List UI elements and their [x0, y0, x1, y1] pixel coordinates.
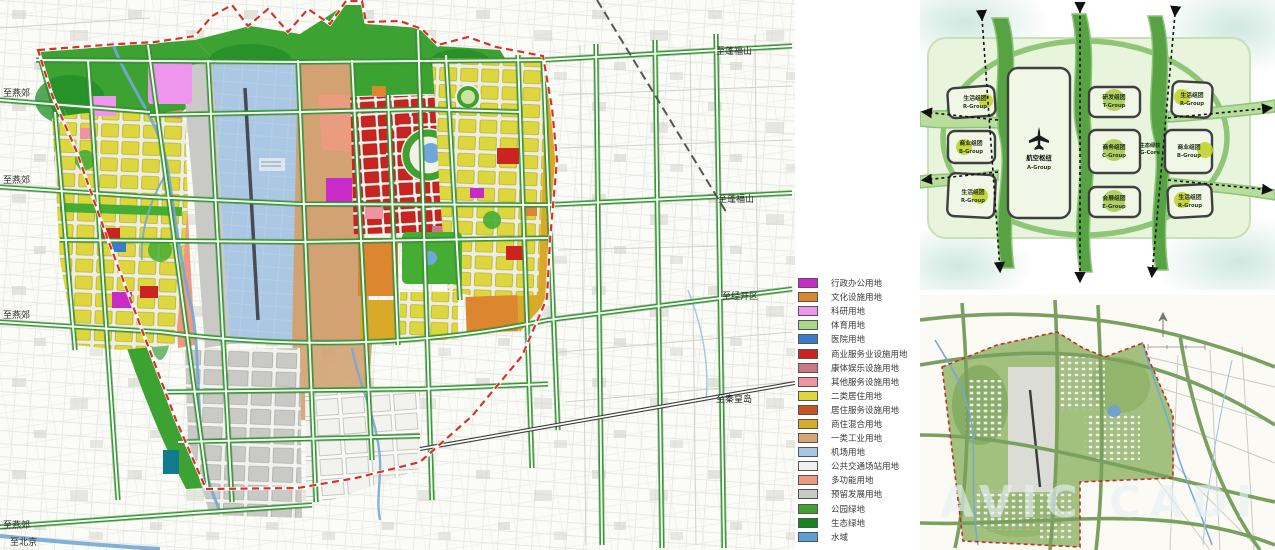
svg-text:T-Group: T-Group [1103, 103, 1126, 109]
legend-swatch [798, 320, 818, 330]
render-runway-strip [1008, 367, 1055, 492]
legend-swatch [798, 363, 818, 373]
legend-swatch [798, 461, 818, 471]
legend-label: 机场用地 [831, 446, 865, 458]
svg-text:R-Group: R-Group [963, 104, 987, 110]
svg-text:B-Group: B-Group [959, 149, 983, 155]
legend-swatch [798, 419, 818, 429]
legend-label: 体育用地 [831, 319, 865, 331]
transit-parcel [163, 450, 179, 474]
road-label: 至燕郊 [3, 174, 30, 186]
road-label: 至燕郊 [3, 309, 30, 321]
svg-text:E-Group: E-Group [1102, 204, 1126, 210]
legend-swatch [798, 349, 818, 359]
svg-text:商业组团: 商业组团 [1177, 143, 1200, 151]
cell-r-group [1167, 184, 1213, 218]
legend-swatch [798, 433, 818, 443]
master-plan-map: 至燕郊 至燕郊 至燕郊 至燕郊 至北京 至蓬福山 至蓬福山 至经开区 至秦皇岛 [0, 0, 795, 550]
svg-text:B-Group: B-Group [1177, 153, 1201, 159]
legend-label: 居住服务设施用地 [831, 404, 899, 416]
legend-swatch [798, 292, 818, 302]
road-label: 至燕郊 [3, 87, 30, 99]
legend-swatch [798, 447, 818, 457]
legend-label: 医院用地 [831, 333, 865, 345]
watermark: AVIC CADI [940, 477, 1260, 528]
legend-swatch [798, 475, 818, 485]
render-plan: AVIC CADI [920, 295, 1275, 550]
legend-swatch [798, 532, 818, 542]
svg-text:生活组团: 生活组团 [1178, 193, 1201, 201]
legend-label: 科研用地 [831, 305, 865, 317]
concept-diagram: 航空枢纽 A-Group 生活组团 R-Group 商业组团 B-Group 生… [920, 0, 1275, 290]
render-pond [1107, 405, 1121, 417]
svg-text:生活组团: 生活组团 [961, 188, 984, 196]
legend-swatch [798, 334, 818, 344]
svg-text:R-Group: R-Group [961, 198, 985, 204]
legend-swatch [798, 405, 818, 415]
legend-swatch [798, 306, 818, 316]
legend-label: 康体娱乐设施用地 [831, 362, 899, 374]
road-label: 至蓬福山 [718, 193, 754, 205]
legend-label: 商住混合用地 [831, 418, 882, 430]
legend-label: 公园绿地 [831, 503, 865, 515]
road-label: 至经开区 [722, 290, 758, 302]
legend-swatch [798, 504, 818, 514]
legend-label: 公共交通场站用地 [831, 460, 899, 472]
legend-label: 多功能用地 [831, 474, 874, 486]
hub-name: 航空枢纽 [1026, 153, 1052, 162]
legend-label: 水域 [831, 531, 848, 543]
legend-label: 其他服务设施用地 [831, 376, 899, 388]
road-label: 至北京 [10, 536, 37, 548]
svg-text:R-Group: R-Group [1178, 203, 1202, 209]
legend-label: 预留发展用地 [831, 488, 882, 500]
svg-text:R-Group: R-Group [1180, 101, 1204, 107]
legend-swatch [798, 518, 818, 528]
legend-label: 生态绿地 [831, 517, 865, 529]
road-label: 至燕郊 [3, 519, 30, 531]
legend-swatch [798, 391, 818, 401]
legend-label: 商业服务业设施用地 [831, 348, 908, 360]
legend-label: 文化设施用地 [831, 291, 882, 303]
legend-swatch [798, 278, 818, 288]
svg-text:C-Group: C-Group [1102, 153, 1126, 159]
svg-text:研发组团: 研发组团 [1102, 93, 1125, 101]
svg-text:生活组团: 生活组团 [963, 94, 986, 102]
legend-label: 行政办公用地 [831, 277, 882, 289]
svg-text:会展组团: 会展组团 [1102, 194, 1125, 202]
hub-code: A-Group [1027, 165, 1051, 171]
planning-board: 至燕郊 至燕郊 至燕郊 至燕郊 至北京 至蓬福山 至蓬福山 至经开区 至秦皇岛 … [0, 0, 1275, 550]
legend-swatch [798, 377, 818, 387]
road-label: 至秦皇岛 [716, 393, 752, 405]
legend-label: 二类居住用地 [831, 390, 882, 402]
svg-text:商务组团: 商务组团 [1102, 143, 1125, 151]
svg-text:商业组团: 商业组团 [959, 139, 982, 147]
legend-swatch [798, 489, 818, 499]
svg-text:生活组团: 生活组团 [1180, 91, 1203, 99]
legend-label: 一类工业用地 [831, 432, 882, 444]
road-label: 至蓬福山 [716, 45, 752, 57]
core-name: 生态绿核 [1140, 141, 1162, 149]
core-code: G-Core [1140, 150, 1160, 156]
